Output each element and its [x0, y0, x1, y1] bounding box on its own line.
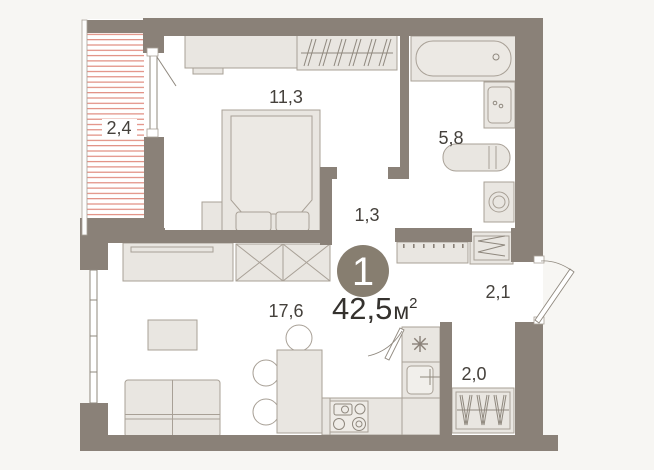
- fridge: [402, 327, 440, 362]
- bed: [222, 110, 320, 236]
- rooms-count-badge: 1: [337, 245, 389, 297]
- shoe-cabinet: [470, 232, 513, 264]
- bedroom-wardrobe: [297, 35, 397, 70]
- bathtub: [411, 36, 516, 81]
- wall-stub-foot-left: [320, 167, 337, 179]
- pillow: [276, 212, 309, 231]
- fridge-asterisk-icon: [412, 336, 428, 352]
- toilet: [443, 144, 510, 171]
- wall-stub-foot-right: [388, 167, 409, 179]
- wall-balcony-top: [83, 20, 145, 33]
- wall-bedroom-living: [164, 230, 322, 243]
- coat-rack-cabinet: [397, 242, 468, 263]
- total-area-unit: м: [393, 298, 409, 324]
- coffee-table: [148, 320, 197, 350]
- bedroom-dresser: [185, 35, 297, 68]
- bedroom-area-label: 11,3: [269, 87, 303, 107]
- total-area-value: 42,5: [332, 291, 392, 326]
- hallway-area-label: 1,3: [354, 205, 379, 225]
- wall-left-lower: [80, 403, 108, 451]
- stove: [330, 401, 368, 432]
- wall-bathroom-bottom: [395, 228, 472, 242]
- balcony-glazing: [82, 20, 87, 235]
- closet-area-label: 2,0: [461, 364, 486, 384]
- wall-right-lower: [515, 322, 543, 451]
- floor-plan-svg: 2,4 11,3 5,8 1,3 17,6 2,1 2,0 1 42,5м2: [0, 0, 654, 470]
- wall-balcony-right: [144, 137, 164, 232]
- washing-machine: [484, 182, 514, 222]
- entry-area-label: 2,1: [485, 282, 510, 302]
- wall-divider-left: [107, 228, 165, 243]
- rooms-count: 1: [352, 250, 374, 294]
- exterior-mask: [78, 268, 90, 405]
- sofa: [125, 380, 220, 437]
- wall-top: [143, 18, 543, 36]
- bathroom-area-label: 5,8: [438, 128, 463, 148]
- wall-hall-left: [320, 179, 332, 245]
- nightstand: [202, 202, 222, 234]
- total-area-sup: 2: [409, 295, 417, 312]
- bathroom-sink: [484, 82, 515, 128]
- tv-stand: [123, 243, 233, 281]
- living-area-label: 17,6: [268, 301, 303, 321]
- wall-bottom: [108, 435, 558, 451]
- closet-wardrobe: [452, 388, 514, 433]
- wall-bedroom-bathroom: [400, 36, 409, 167]
- x-wardrobe: [236, 244, 330, 281]
- wall-right-upper: [515, 18, 543, 262]
- wall-kitchen-closet: [440, 322, 452, 437]
- balcony-area-label: 2,4: [106, 118, 131, 138]
- bedroom-dresser-tab: [193, 68, 223, 74]
- pillow: [236, 212, 271, 231]
- kitchen-counter: [322, 398, 440, 435]
- floor-plan-page: 2,4 11,3 5,8 1,3 17,6 2,1 2,0 1 42,5м2: [0, 0, 654, 470]
- dining-table: [277, 350, 322, 433]
- living-room-window: [90, 270, 97, 403]
